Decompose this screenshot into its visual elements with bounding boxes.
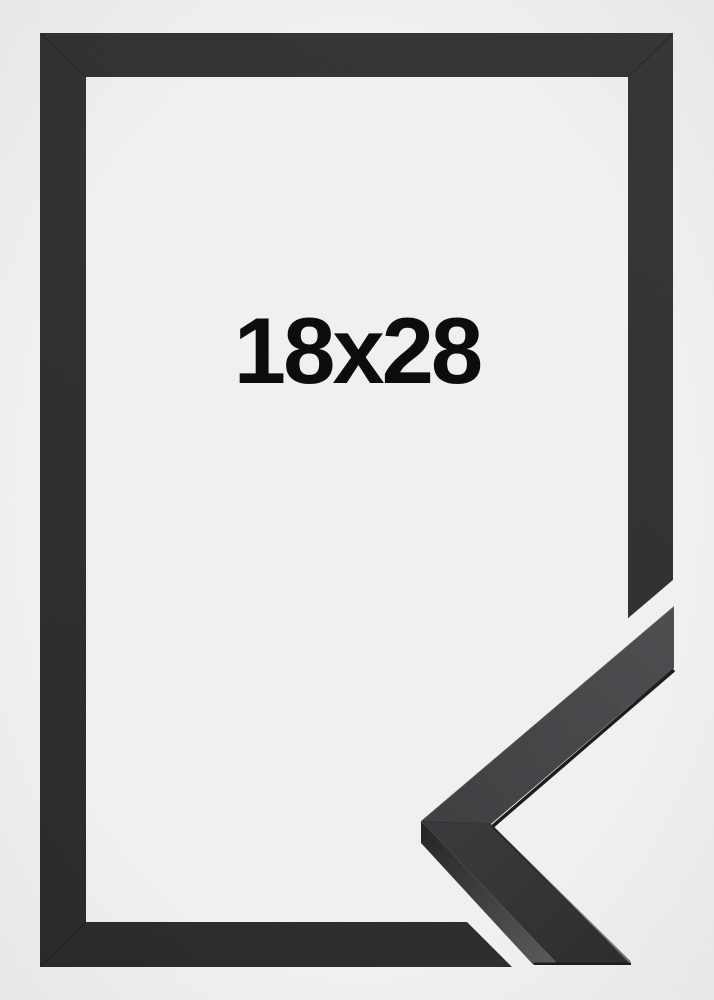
- product-photo: 18x28: [0, 0, 714, 1000]
- frame-photo-canvas: 18x28: [0, 0, 714, 1000]
- grain-overlay: [0, 0, 714, 1000]
